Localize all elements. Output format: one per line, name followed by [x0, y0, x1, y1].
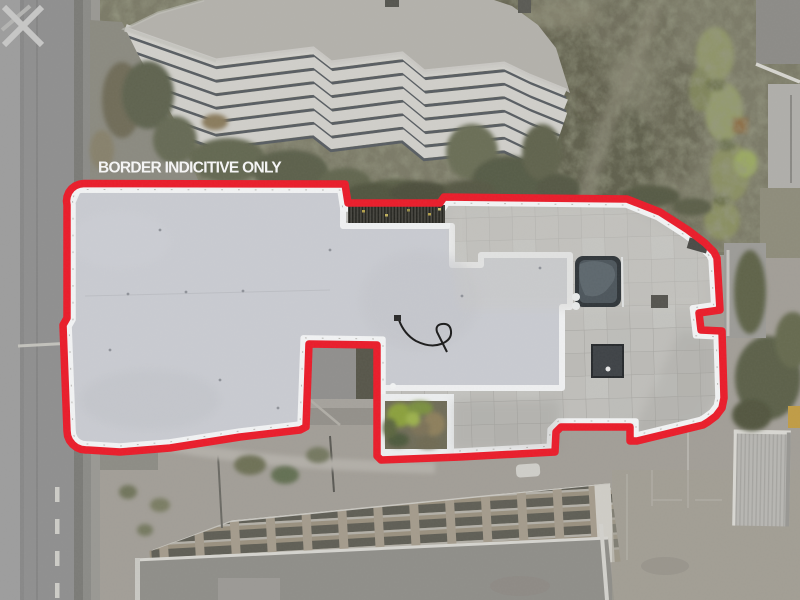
svg-text:BORDER INDICITIVE ONLY: BORDER INDICITIVE ONLY: [98, 160, 282, 177]
